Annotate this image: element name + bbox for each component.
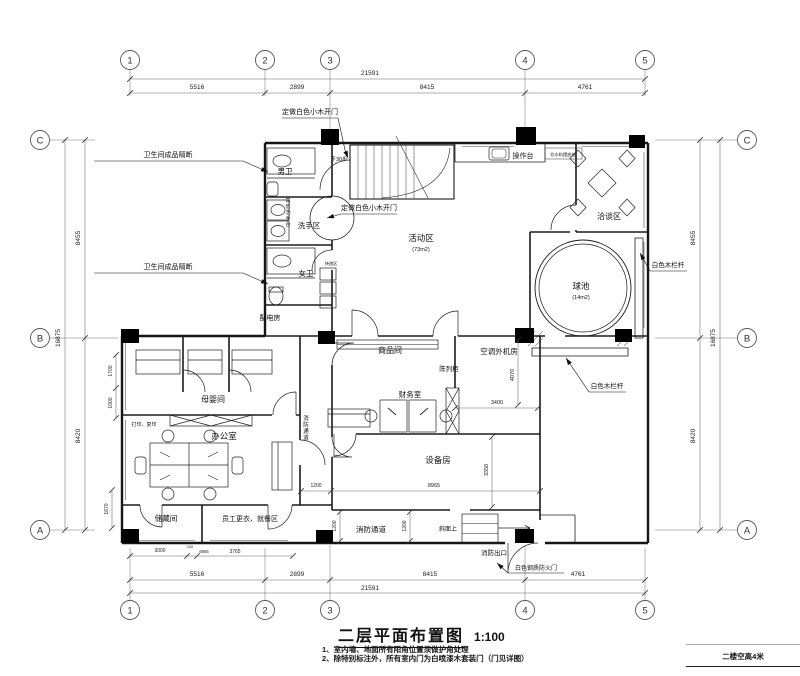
column-marker bbox=[121, 529, 139, 543]
railing-right bbox=[635, 238, 643, 338]
dim-text: 1670 bbox=[104, 503, 110, 514]
column-marker bbox=[629, 135, 645, 148]
note-line-2: 2、除特别标注外，所有室内门为白喷漆木套装门（门见详图） bbox=[322, 654, 529, 663]
vertical-label: 高低洗手台 bbox=[285, 197, 290, 228]
room-label: 斜面上 bbox=[439, 525, 457, 533]
room-label: 配电房 bbox=[260, 313, 281, 322]
leader-label: 白色木栏杆 bbox=[591, 381, 624, 390]
dim-text: 8455 bbox=[75, 230, 82, 245]
dim-text: 1000 bbox=[108, 397, 114, 408]
room-label: (14m2) bbox=[572, 295, 590, 301]
grid-bubble-label: 5 bbox=[642, 55, 647, 66]
dim-text: 21591 bbox=[361, 70, 379, 77]
grid-bubble-label: 1 bbox=[127, 55, 132, 66]
room-label: 饮水机摆放处 bbox=[550, 151, 576, 158]
room-label: 员工更衣、就餐区 bbox=[222, 514, 278, 523]
room-label: 设备房 bbox=[425, 455, 451, 465]
staircase bbox=[350, 136, 454, 199]
nursing-room-sofas bbox=[136, 350, 272, 374]
grid-bubble-label: B bbox=[37, 333, 43, 344]
room-label: 洗手区 bbox=[298, 220, 321, 230]
dim-text: 8420 bbox=[75, 428, 82, 443]
room-label: 财务室 bbox=[399, 389, 422, 399]
column-marker bbox=[316, 530, 333, 543]
leader-label: 定做白色小木开门 bbox=[282, 107, 338, 116]
office-furniture bbox=[135, 415, 292, 500]
grid-bubble-label: 2 bbox=[262, 605, 267, 616]
dim-text: 1700 bbox=[108, 365, 114, 376]
dim-text: 3000 bbox=[154, 548, 165, 554]
grid-bubble-label: 3 bbox=[327, 55, 332, 66]
drawing-notes: 1、室内墙、地面所有阳角位置须做护角处理 2、除特别标注外，所有室内门为白喷漆木… bbox=[322, 645, 529, 663]
room-label: 快递区 bbox=[325, 260, 338, 267]
grid-bubble-label: 3 bbox=[327, 605, 332, 616]
floor-plan-canvas: 1234512345CBACBA215915516289984154761551… bbox=[0, 0, 800, 676]
column-marker bbox=[321, 129, 339, 145]
dim-text: 2899 bbox=[290, 84, 305, 91]
room-label: 洽谈区 bbox=[597, 211, 621, 221]
grid-bubble-label: 2 bbox=[262, 55, 267, 66]
floor-plan-page: { "meta": { "title": "二层平面布置图", "scale":… bbox=[0, 0, 800, 676]
grid-bubble-label: 5 bbox=[642, 605, 647, 616]
dim-text: 16875 bbox=[55, 329, 62, 347]
room-label: 陈列柜 bbox=[439, 364, 459, 373]
room-label: (73m2) bbox=[412, 247, 430, 253]
leader-label: 白色木栏杆 bbox=[652, 260, 685, 269]
dim-text: 8455 bbox=[690, 230, 697, 245]
print-copy-counter bbox=[170, 415, 252, 426]
room-label: 商品间 bbox=[378, 345, 402, 355]
grid-bubble-label: 4 bbox=[522, 605, 527, 616]
outer-wall-lines bbox=[122, 143, 648, 543]
column-marker bbox=[121, 329, 139, 343]
room-label: 男卫 bbox=[278, 167, 293, 176]
dim-text: 4761 bbox=[578, 84, 593, 91]
dim-text: 1200 bbox=[332, 520, 338, 531]
finance-sofa bbox=[328, 409, 370, 427]
room-label: 储藏间 bbox=[155, 513, 178, 523]
leader-arrowhead bbox=[566, 358, 572, 365]
dim-text: 8415 bbox=[423, 571, 438, 578]
dim-text: 4761 bbox=[571, 571, 586, 578]
dim-text: 6865 bbox=[199, 549, 209, 554]
room-label: 打印、复印 bbox=[131, 421, 156, 428]
dim-text: 1200 bbox=[402, 520, 408, 531]
dim-text: 8965 bbox=[428, 483, 440, 489]
dim-text: 3350 bbox=[484, 464, 490, 476]
column-marker bbox=[615, 329, 632, 342]
door-arcs bbox=[140, 160, 576, 573]
room-label: 球池 bbox=[572, 281, 590, 291]
dim-text: 5516 bbox=[190, 84, 205, 91]
vertical-label: 消防通道 bbox=[303, 414, 309, 442]
column-marker bbox=[318, 331, 335, 344]
room-label: 操作台 bbox=[513, 151, 534, 160]
dim-text: 1200 bbox=[310, 483, 321, 489]
leader-label: 卫生间成品隔断 bbox=[144, 150, 193, 159]
column-marker bbox=[515, 529, 534, 543]
dim-text: 3765 bbox=[229, 549, 240, 555]
footer-note: 二楼空高4米 bbox=[686, 644, 800, 667]
leader-label: 卫生间成品隔断 bbox=[144, 262, 193, 271]
dim-text: 21591 bbox=[361, 585, 379, 592]
grid-bubble-label: B bbox=[744, 333, 750, 344]
column-marker bbox=[516, 127, 536, 145]
dim-text: 4070 bbox=[510, 369, 516, 381]
negotiation-furniture bbox=[570, 150, 635, 216]
interior-wall-lines bbox=[122, 143, 648, 543]
note-line-1: 1、室内墙、地面所有阳角位置须做护角处理 bbox=[322, 645, 529, 654]
room-label: 消防出口 bbox=[481, 548, 507, 557]
room-label: 消防通道 bbox=[356, 524, 386, 534]
grid-bubble-label: 1 bbox=[127, 605, 132, 616]
grid-bubble-label: A bbox=[744, 525, 751, 536]
grid-bubble-label: C bbox=[744, 135, 751, 146]
room-label: 空调外机房 bbox=[480, 346, 518, 356]
room-label: 母婴间 bbox=[201, 395, 225, 404]
room-label: 办公室 bbox=[211, 431, 237, 441]
grid-bubble-label: 4 bbox=[522, 55, 527, 66]
leader-arrowhead bbox=[327, 214, 334, 218]
dim-text: 5516 bbox=[190, 571, 205, 578]
drawing-scale: 1:100 bbox=[474, 630, 505, 644]
office-sofa bbox=[272, 442, 292, 490]
room-label: 活动区 bbox=[408, 233, 434, 243]
dim-text: 8415 bbox=[420, 84, 435, 91]
grid-bubble-label: A bbox=[37, 525, 44, 536]
leader-label: 白色钢质防火门 bbox=[515, 564, 557, 572]
dim-text: 3400 bbox=[491, 400, 503, 406]
dim-text: 8420 bbox=[690, 428, 697, 443]
dim-text: 16875 bbox=[710, 329, 717, 347]
railing-bottom bbox=[532, 348, 628, 356]
room-label: 女卫 bbox=[299, 268, 314, 278]
dim-text: 100 bbox=[187, 545, 193, 549]
grid-bubble-label: C bbox=[37, 135, 44, 146]
room-label: 下30步 bbox=[330, 156, 348, 163]
leader-label: 定做白色小木开门 bbox=[341, 203, 397, 212]
dim-text: 2899 bbox=[290, 571, 305, 578]
